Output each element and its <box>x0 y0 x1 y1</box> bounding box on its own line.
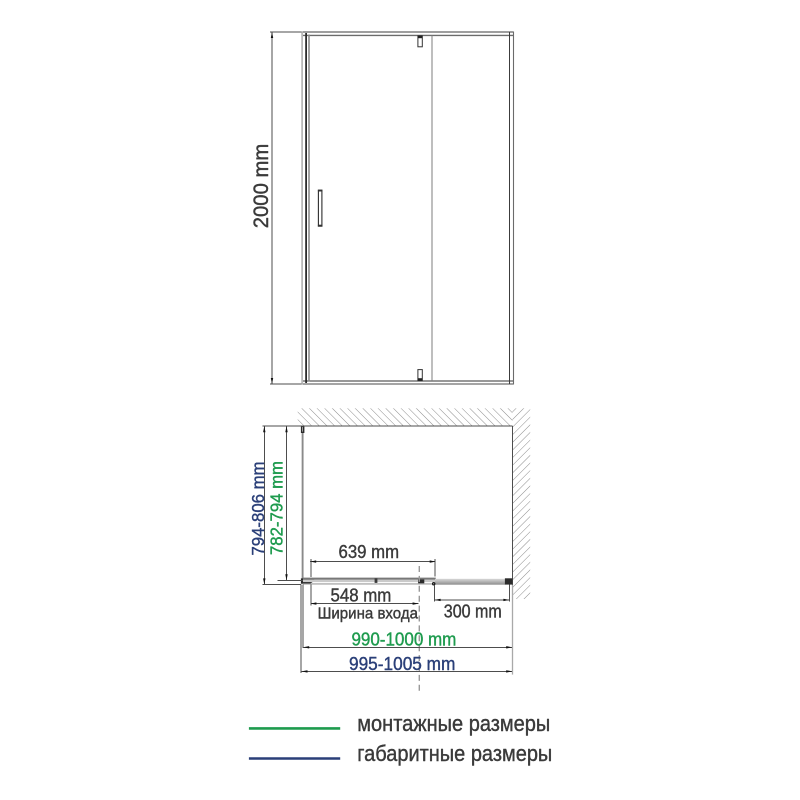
svg-text:монтажные размеры: монтажные размеры <box>357 711 550 736</box>
svg-text:548 mm: 548 mm <box>331 585 392 605</box>
svg-text:габаритные размеры: габаритные размеры <box>357 741 552 766</box>
svg-text:300 mm: 300 mm <box>444 601 502 621</box>
svg-text:990-1000 mm: 990-1000 mm <box>351 628 456 649</box>
svg-text:2000 mm: 2000 mm <box>249 144 273 229</box>
svg-text:995-1005 mm: 995-1005 mm <box>349 653 455 674</box>
svg-text:Ширина входа: Ширина входа <box>318 605 419 622</box>
svg-text:782-794 mm: 782-794 mm <box>267 461 287 555</box>
svg-text:639 mm: 639 mm <box>339 542 400 562</box>
svg-text:794-806 mm: 794-806 mm <box>248 462 268 556</box>
